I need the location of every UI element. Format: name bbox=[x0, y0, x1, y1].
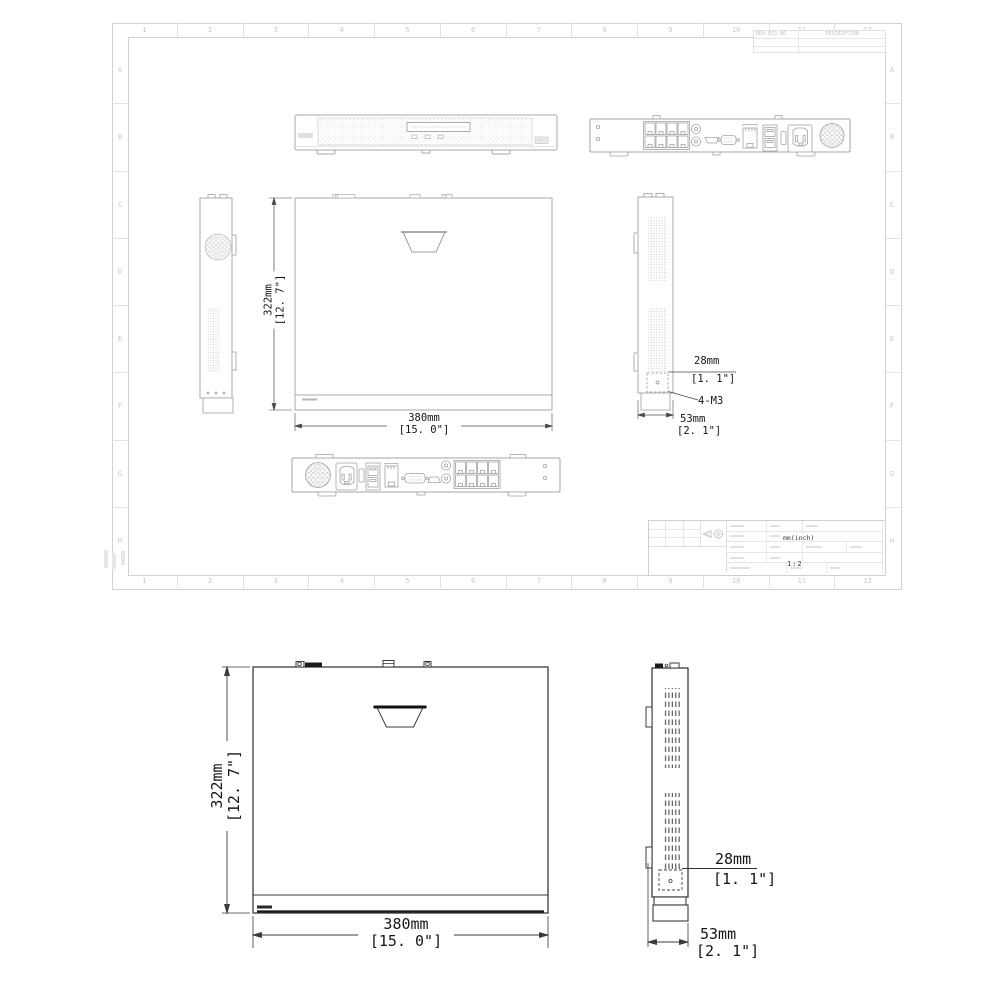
title-block-rows bbox=[727, 521, 883, 573]
mount-bracket bbox=[232, 235, 236, 255]
zone-label: F bbox=[112, 373, 128, 440]
zone-label: 1 bbox=[112, 574, 178, 588]
zone-label: G bbox=[884, 441, 900, 508]
zone-band-left: ABCDEFGH bbox=[112, 37, 128, 574]
technical-drawing-page: 123456789101112 123456789101112 ABCDEFGH… bbox=[0, 0, 1000, 1000]
zone-label: 5 bbox=[375, 23, 441, 37]
side-foot-plate bbox=[653, 905, 688, 921]
zone-label: E bbox=[884, 306, 900, 373]
revision-table: REV ECO NODESCRIPTION bbox=[753, 30, 886, 53]
power-switch bbox=[781, 132, 786, 145]
hdmi-port bbox=[705, 138, 719, 144]
usb-ports bbox=[763, 125, 777, 151]
zone-label: 10 bbox=[704, 574, 770, 588]
illegible-stamp bbox=[104, 550, 108, 568]
zone-label: 12 bbox=[835, 574, 900, 588]
zone-band-bottom: 123456789101112 bbox=[112, 574, 900, 588]
mount-bracket bbox=[646, 707, 652, 727]
revision-header-right: DESCRIPTION bbox=[799, 31, 885, 38]
power-switch bbox=[359, 469, 364, 482]
front-view bbox=[286, 110, 562, 160]
projection-symbol-box bbox=[701, 521, 727, 547]
dim-depth-sheet: 53mm bbox=[680, 414, 705, 426]
scale-value: 1:2 bbox=[787, 560, 803, 568]
mount-bracket bbox=[646, 847, 652, 868]
poe-ports bbox=[454, 461, 500, 489]
dim-depth-inch-sheet: [2. 1"] bbox=[677, 426, 721, 438]
brand-logo bbox=[298, 133, 313, 138]
rear-view-mirrored bbox=[288, 450, 564, 504]
zone-label: 3 bbox=[244, 23, 310, 37]
dim-depth-large: 53mm bbox=[700, 926, 736, 943]
rear-feet bbox=[610, 152, 815, 156]
front-indicators bbox=[412, 135, 443, 139]
zone-label: A bbox=[112, 37, 128, 104]
side-view-large bbox=[640, 655, 775, 960]
zone-label: 11 bbox=[770, 574, 836, 588]
zone-label: 7 bbox=[507, 574, 573, 588]
power-inlet bbox=[788, 125, 812, 152]
side-foot bbox=[641, 393, 670, 410]
side-foot-neck bbox=[654, 897, 686, 905]
zone-label: A bbox=[884, 37, 900, 104]
usb-ports bbox=[366, 463, 380, 490]
zone-band-right: ABCDEFGH bbox=[884, 37, 900, 574]
zone-label: B bbox=[112, 104, 128, 171]
hdmi-port bbox=[428, 477, 441, 483]
dim-width-inch-sheet: [15. 0"] bbox=[387, 425, 461, 437]
zone-label: 8 bbox=[572, 23, 638, 37]
dim-bracket-large: 28mm bbox=[715, 851, 751, 868]
units-label: mm(inch) bbox=[783, 534, 814, 542]
zone-label: H bbox=[884, 508, 900, 574]
fan-grille bbox=[820, 124, 844, 148]
revision-header-left: REV ECO NO bbox=[754, 31, 799, 38]
title-block-lower-cell bbox=[649, 547, 727, 573]
zone-label: 6 bbox=[441, 574, 507, 588]
screw-hole bbox=[543, 476, 546, 479]
dim-bracket-sheet: 28mm bbox=[694, 356, 719, 368]
zone-label: B bbox=[884, 104, 900, 171]
dim-width-inch-large: [15. 0"] bbox=[358, 933, 454, 950]
fan-grille bbox=[306, 463, 331, 488]
dim-width-large: 380mm bbox=[366, 916, 446, 933]
dim-height-sheet: 322mm[12. 7"] bbox=[264, 272, 288, 329]
screw-hole bbox=[596, 125, 599, 128]
mount-hole-box bbox=[647, 373, 668, 392]
lan-port bbox=[385, 464, 398, 488]
zone-label: G bbox=[112, 441, 128, 508]
top-view bbox=[256, 190, 556, 442]
zone-label: 6 bbox=[441, 23, 507, 37]
mount-bracket bbox=[634, 353, 638, 371]
zone-label: C bbox=[884, 172, 900, 239]
side-foot bbox=[203, 398, 233, 413]
rear-view bbox=[586, 112, 852, 162]
hex-vent bbox=[205, 234, 231, 260]
zone-label: C bbox=[112, 172, 128, 239]
zone-label: 7 bbox=[507, 23, 573, 37]
screw-hole bbox=[596, 137, 599, 140]
dim-depth-inch-large: [2. 1"] bbox=[696, 943, 759, 960]
zone-label: D bbox=[112, 239, 128, 306]
zone-label: D bbox=[884, 239, 900, 306]
rear-feet bbox=[318, 492, 526, 496]
zone-label: 4 bbox=[309, 574, 375, 588]
side-vent-strip bbox=[663, 688, 680, 768]
screw-spec-label: 4-M3 bbox=[698, 396, 723, 408]
zone-label: 4 bbox=[309, 23, 375, 37]
dim-bracket-inch-sheet: [1. 1"] bbox=[691, 374, 735, 386]
illegible-stamp bbox=[112, 553, 116, 569]
zone-label: 2 bbox=[178, 574, 244, 588]
zone-label: 2 bbox=[178, 23, 244, 37]
illegible-stamp bbox=[121, 551, 125, 565]
left-side-view bbox=[194, 190, 240, 422]
zone-label: 1 bbox=[112, 23, 178, 37]
zone-label: 9 bbox=[638, 23, 704, 37]
front-feet bbox=[317, 150, 510, 154]
mount-bracket bbox=[634, 233, 638, 253]
front-label-slot bbox=[407, 123, 470, 132]
zone-label: F bbox=[884, 373, 900, 440]
power-inlet bbox=[336, 463, 357, 490]
zone-label: 3 bbox=[244, 574, 310, 588]
side-vent-strip bbox=[207, 308, 220, 372]
third-angle-projection-icon bbox=[701, 521, 727, 547]
dim-width-sheet: 380mm bbox=[394, 413, 454, 425]
side-vent-strip bbox=[648, 217, 667, 281]
vga-port bbox=[402, 474, 429, 484]
screw-hole bbox=[543, 464, 546, 467]
side-vent-strip bbox=[663, 793, 680, 870]
zone-label: 8 bbox=[572, 574, 638, 588]
side-vent-strip bbox=[648, 308, 667, 372]
title-block-grid bbox=[649, 521, 701, 547]
dim-bracket-inch-large: [1. 1"] bbox=[713, 871, 776, 888]
mount-bracket bbox=[232, 352, 236, 370]
lan-port bbox=[743, 125, 757, 149]
zone-label: E bbox=[112, 306, 128, 373]
poe-ports bbox=[644, 122, 690, 150]
zone-label: 9 bbox=[638, 574, 704, 588]
dim-height-large: 322mm[12. 7"] bbox=[209, 741, 243, 831]
zone-label: 5 bbox=[375, 574, 441, 588]
title-block: mm(inch) 1:2 bbox=[648, 520, 886, 576]
front-usb-cover bbox=[535, 137, 548, 144]
right-side-view bbox=[632, 188, 744, 438]
